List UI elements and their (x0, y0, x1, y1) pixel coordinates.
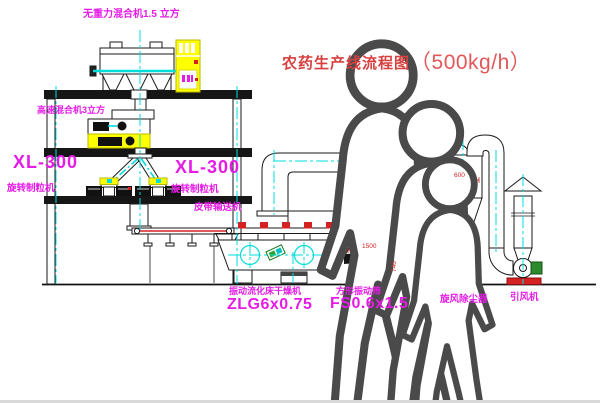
label-granulator-mid-name: 旋转制粒机 (171, 185, 219, 195)
label-granulator-mid-model: XL-300 (175, 158, 240, 177)
control-cabinet-top (176, 40, 200, 92)
label-fan: 引风机 (510, 293, 539, 303)
down-duct (127, 204, 151, 230)
dim-screen-height: 740 (391, 261, 398, 272)
title-capacity: （500kg/h） (410, 46, 531, 76)
label-mid-mixer: 高速混合机3立方 (37, 106, 105, 115)
label-screen-model: FS0.6x1.5 (330, 296, 408, 313)
label-granulator-left-name: 旋转制粒机 (7, 184, 55, 194)
label-top-mixer: 无重力混合机1.5 立方 (83, 10, 180, 21)
dim-cyclone-dia: 600 (454, 172, 465, 179)
title-text: 农药生产线流程图 (282, 46, 410, 73)
diagram-title: 农药生产线流程图 （500kg/h） (282, 46, 531, 76)
dim-screen-length: 1500 (362, 243, 377, 250)
pesticide-line-flow-diagram: 1500 740 600 农药生产线流程图 （500kg/h） 无重力混合机1.… (0, 0, 600, 403)
granulator-left (86, 178, 132, 196)
label-belt-conveyor: 皮带输送机 (194, 203, 242, 213)
label-granulator-left-model: XL-300 (13, 153, 78, 172)
belt-conveyor (132, 228, 238, 283)
label-dryer-model: ZLG6x0.75 (227, 297, 312, 314)
rotary-granulators (86, 178, 181, 196)
people (321, 44, 600, 403)
label-cyclone: 旋风除尘器 (440, 295, 488, 305)
